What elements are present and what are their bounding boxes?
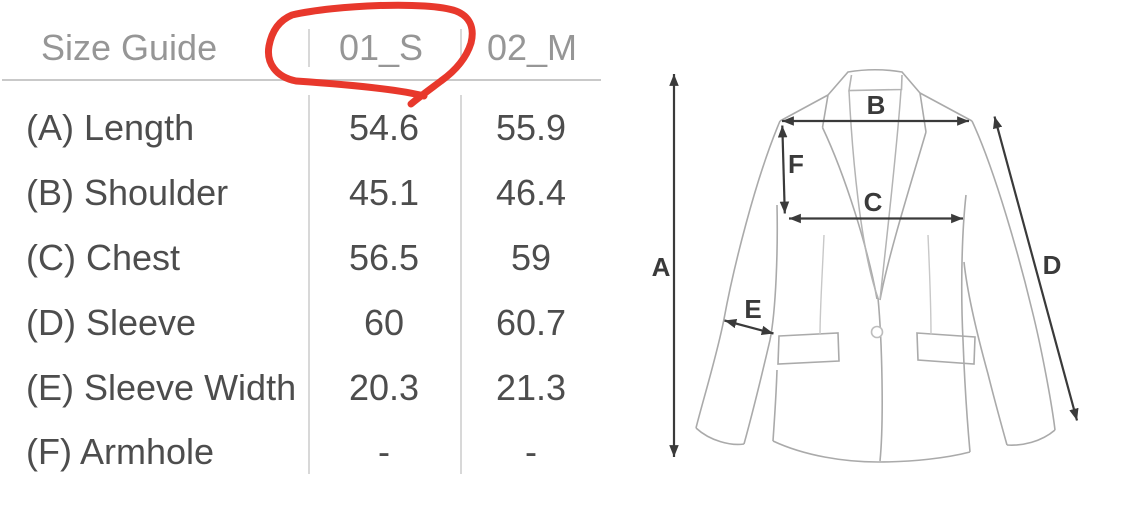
svg-text:E: E: [744, 294, 761, 324]
svg-text:A: A: [652, 252, 671, 282]
svg-text:01_S: 01_S: [339, 27, 423, 68]
svg-text:59: 59: [511, 237, 551, 278]
svg-text:(B) Shoulder: (B) Shoulder: [26, 172, 228, 213]
svg-text:55.9: 55.9: [496, 107, 566, 148]
svg-text:54.6: 54.6: [349, 107, 419, 148]
svg-text:45.1: 45.1: [349, 172, 419, 213]
svg-text:21.3: 21.3: [496, 367, 566, 408]
svg-text:(E) Sleeve Width: (E) Sleeve Width: [26, 367, 296, 408]
svg-text:46.4: 46.4: [496, 172, 566, 213]
svg-text:-: -: [525, 431, 537, 472]
svg-text:B: B: [867, 90, 886, 120]
svg-text:F: F: [788, 149, 804, 179]
svg-text:20.3: 20.3: [349, 367, 419, 408]
svg-text:-: -: [378, 431, 390, 472]
svg-text:D: D: [1043, 250, 1062, 280]
svg-text:60.7: 60.7: [496, 302, 566, 343]
svg-text:(C) Chest: (C) Chest: [26, 237, 180, 278]
svg-text:C: C: [864, 187, 883, 217]
svg-text:(D) Sleeve: (D) Sleeve: [26, 302, 196, 343]
svg-text:Size Guide: Size Guide: [41, 27, 217, 68]
svg-text:(F) Armhole: (F) Armhole: [26, 431, 214, 472]
svg-text:60: 60: [364, 302, 404, 343]
svg-text:02_M: 02_M: [487, 27, 577, 68]
svg-text:56.5: 56.5: [349, 237, 419, 278]
svg-text:(A) Length: (A) Length: [26, 107, 194, 148]
